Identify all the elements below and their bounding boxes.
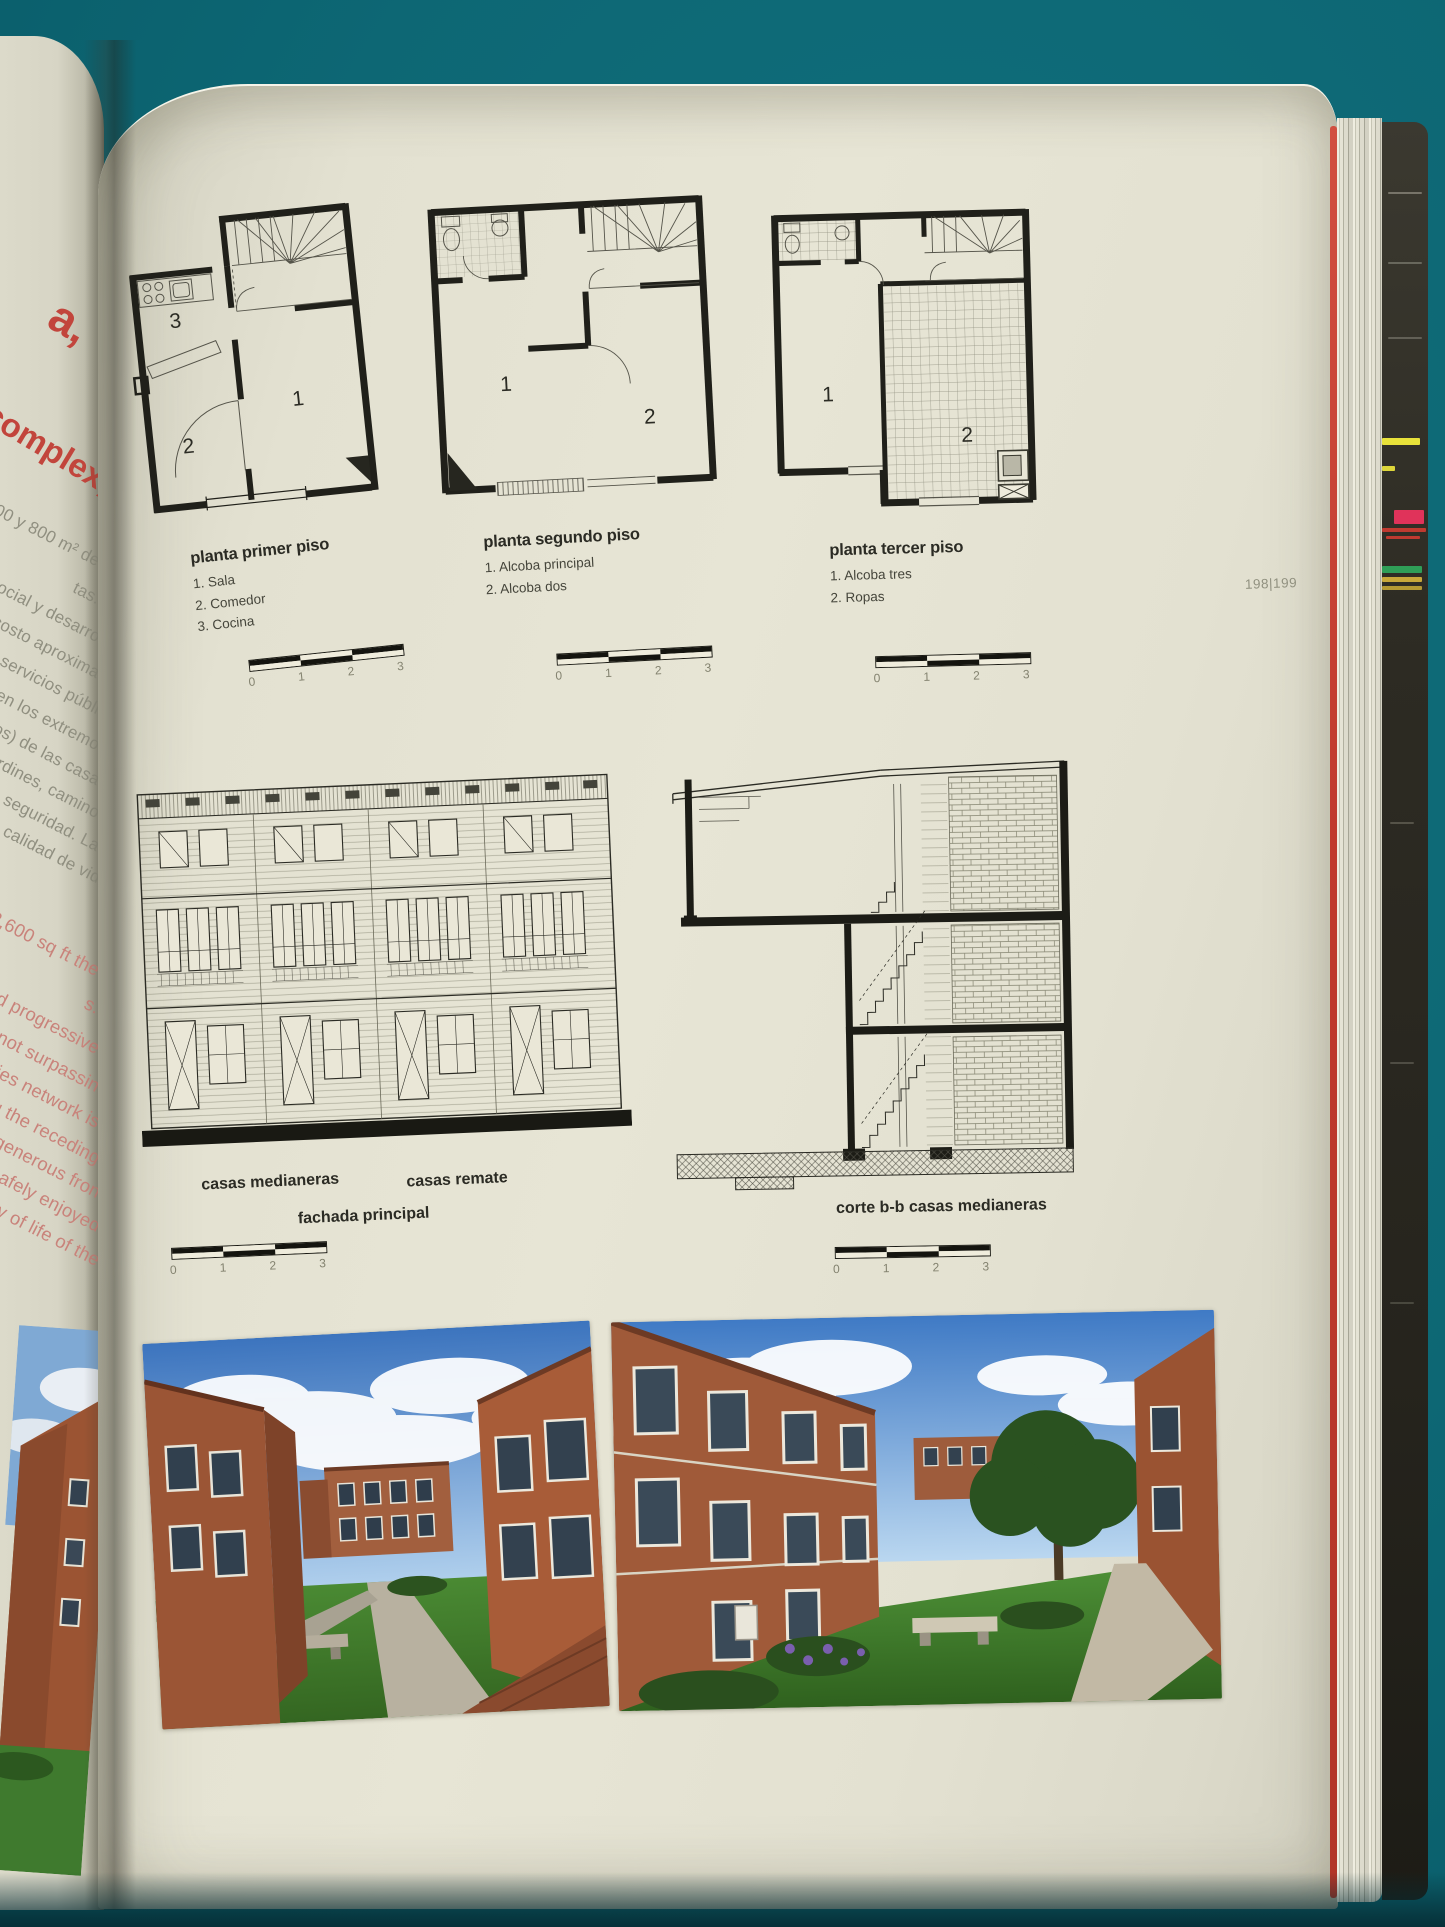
index-tab-yellow	[1382, 438, 1420, 445]
tick-label: 1	[297, 669, 305, 684]
left-page-red-fragment: a,	[39, 288, 99, 354]
room-label: 1	[822, 383, 834, 406]
floor-plan-second-drawing: 1 2	[420, 187, 723, 502]
scale-bar: 0 1 2 3	[248, 644, 406, 689]
index-tab-red	[1386, 536, 1420, 539]
index-tab	[1388, 262, 1422, 264]
index-tab	[1390, 1062, 1414, 1064]
left-page-photo-fragment	[0, 1325, 104, 1876]
room-label: 1	[291, 387, 305, 411]
index-tab-gold	[1382, 577, 1422, 582]
section-drawing	[668, 751, 1086, 1193]
left-page-text: 500 y 800 m² de	[0, 496, 104, 571]
plan-second-label: planta segundo piso 1. Alcoba principal …	[483, 525, 643, 600]
section-caption: corte b-b casas medianeras	[836, 1196, 1047, 1218]
tick-label: 0	[833, 1262, 840, 1276]
scale-bar: 0 1 2 3	[875, 652, 1032, 685]
tick-label: 3	[1023, 667, 1030, 681]
elevation-label-right: casas remate	[406, 1169, 508, 1191]
room-label: 3	[168, 309, 182, 333]
section-block: corte b-b casas medianeras 0 1 2 3	[668, 750, 1118, 1318]
index-tab	[1390, 1302, 1414, 1304]
page-number: 198|199	[1245, 575, 1298, 592]
tick-label: 1	[219, 1260, 226, 1274]
tick-label: 1	[605, 666, 612, 680]
plan-third-label: planta tercer piso 1. Alcoba tres 2. Rop…	[829, 538, 965, 609]
plan-title: planta segundo piso	[483, 525, 640, 552]
tick-label: 0	[170, 1263, 177, 1277]
index-tab	[1388, 192, 1422, 194]
page-edge-red-rule	[1330, 126, 1337, 1898]
room-label: 2	[643, 405, 656, 429]
index-tab-pink	[1394, 510, 1424, 524]
index-tab-yellow-small	[1382, 466, 1395, 471]
left-page: a, complex, 500 y 800 m² de tas. social …	[0, 36, 104, 1910]
tick-label: 1	[883, 1261, 890, 1275]
elevation-caption: fachada principal	[298, 1205, 430, 1229]
book-fore-edge	[1382, 122, 1428, 1900]
plan-first-label: planta primer piso 1. Sala 2. Comedor 3.…	[189, 535, 337, 638]
tick-label: 2	[347, 664, 355, 679]
index-tab-gold	[1382, 586, 1422, 590]
tick-label: 2	[973, 668, 980, 682]
right-page: 1 2 3 planta primer piso 1. Sala 2. Come…	[98, 84, 1338, 1909]
tick-label: 3	[319, 1256, 326, 1270]
floor-plan-first-drawing: 1 2 3	[115, 195, 386, 528]
tick-label: 1	[923, 670, 930, 684]
scale-bar: 0 1 2 3	[556, 646, 713, 683]
index-tab	[1388, 337, 1422, 339]
index-tab	[1390, 822, 1414, 824]
tick-label: 0	[248, 674, 256, 689]
left-page-title-fragment: complex,	[0, 395, 104, 501]
tick-label: 2	[269, 1258, 276, 1272]
tick-label: 3	[982, 1259, 989, 1273]
index-tab-red	[1382, 528, 1426, 532]
elevation-block: casas medianeras casas remate fachada pr…	[126, 755, 659, 1317]
room-label: 1	[500, 373, 513, 397]
scale-bar: 0 1 2 3	[835, 1244, 991, 1276]
plan-title: planta tercer piso	[829, 538, 963, 561]
tick-label: 2	[932, 1260, 939, 1274]
room-label: 2	[961, 424, 973, 447]
page-edge-stack	[1337, 118, 1382, 1902]
elevation-drawing	[126, 756, 633, 1179]
book-photo: a, complex, 500 y 800 m² de tas. social …	[0, 0, 1445, 1927]
floor-plan-third-drawing: 1 2	[763, 200, 1043, 517]
courtyard-photo-left	[142, 1321, 610, 1730]
plan-second-block: 1 2 planta segundo piso 1. Alcoba princi…	[414, 178, 752, 733]
room-label: 2	[181, 435, 195, 459]
plan-third-block: 1 2 planta tercer piso 1. Alcoba tres 2.…	[751, 187, 1085, 735]
tick-label: 3	[704, 661, 711, 675]
legend-item: 2. Ropas	[830, 583, 964, 608]
index-tab-green	[1382, 566, 1422, 573]
tick-label: 0	[873, 671, 880, 685]
tick-label: 0	[555, 668, 562, 682]
courtyard-photo-right	[611, 1310, 1222, 1712]
plan-first-block: 1 2 3 planta primer piso 1. Sala 2. Come…	[115, 191, 440, 756]
left-page-text-en: nd 2,600 sq ft the	[0, 895, 104, 981]
tick-label: 2	[654, 663, 661, 677]
scale-bar: 0 1 2 3	[171, 1241, 328, 1277]
tick-label: 3	[396, 659, 404, 674]
